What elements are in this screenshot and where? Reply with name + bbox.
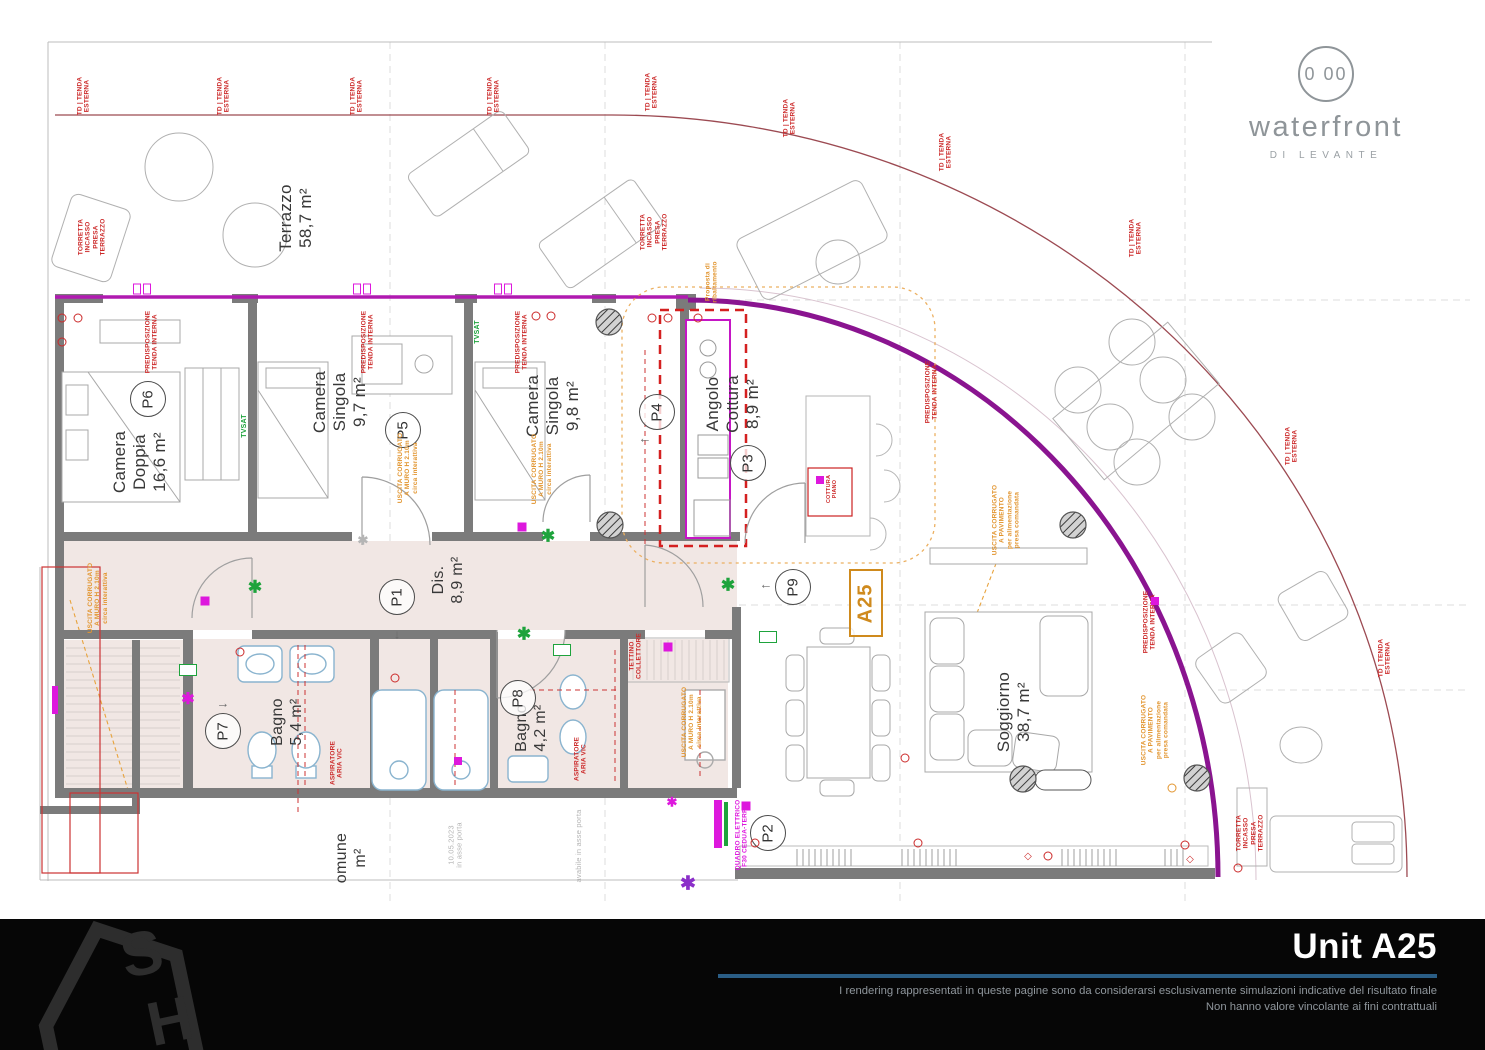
waterfront-logo-glyphs: 0 00 — [1304, 64, 1347, 85]
footer-accent-rule — [718, 974, 1437, 978]
outer-parallel-line — [700, 288, 1256, 880]
waterfront-logo: 0 00 waterfront DI LEVANTE — [1238, 46, 1414, 161]
waterfront-logo-icon: 0 00 — [1298, 46, 1354, 102]
unit-title: Unit A25 — [1292, 927, 1437, 967]
waterfront-brand-text: waterfront — [1238, 111, 1414, 144]
window-wall-arc — [688, 300, 1218, 877]
sh-house-logo: S H — [10, 919, 220, 1050]
sh-logo-letter-s: S — [114, 919, 169, 992]
living-furniture — [786, 548, 1092, 796]
waterfront-sub-text: DI LEVANTE — [1238, 150, 1414, 161]
floorplan-page: Terrazzo 58,7 m²Camera Doppia 16,6 m²Cam… — [0, 0, 1485, 1050]
footer-bar: S H Unit A25 I rendering rappresentati i… — [0, 919, 1485, 1050]
window-sill — [740, 846, 1208, 866]
kitchen-unit — [622, 287, 935, 563]
disclaimer-line-1: I rendering rappresentati in queste pagi… — [839, 983, 1437, 999]
disclaimer-line-2: Non hanno valore vincolante ai fini cont… — [839, 999, 1437, 1015]
footer-disclaimer: I rendering rappresentati in queste pagi… — [839, 983, 1437, 1016]
